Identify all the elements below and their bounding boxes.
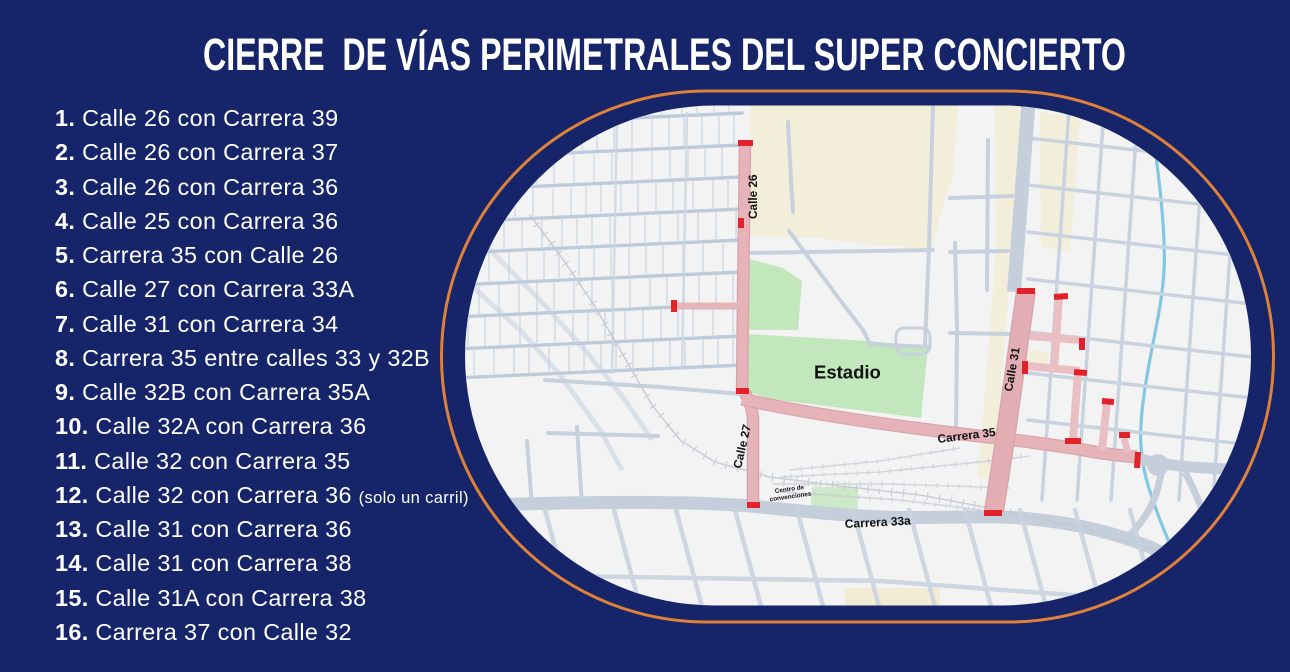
svg-text:Estadio: Estadio: [814, 362, 881, 383]
svg-text:Calle 26: Calle 26: [746, 174, 760, 219]
